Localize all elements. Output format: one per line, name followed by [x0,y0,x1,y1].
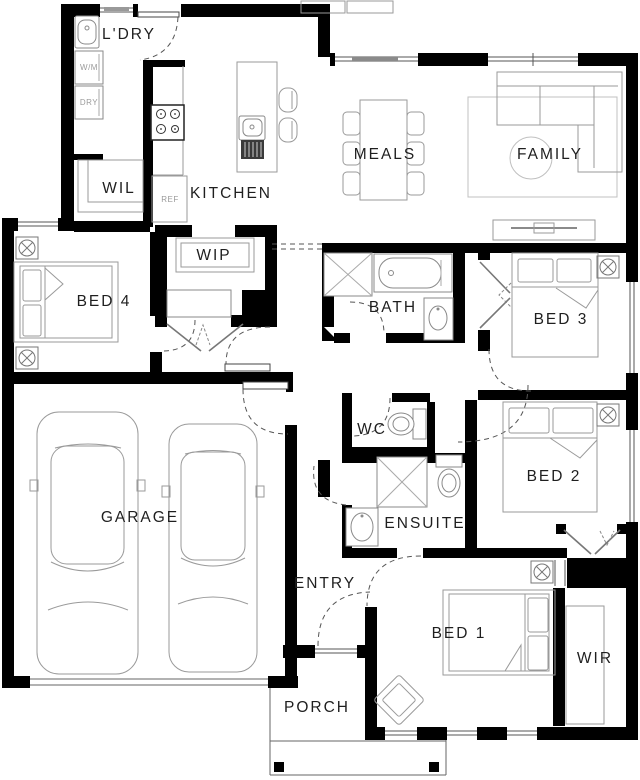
bath-vanity-icon [424,298,453,340]
car-1 [30,412,145,674]
car-2 [162,424,264,672]
room-label-kitchen: KITCHEN [190,185,272,202]
room-label-wc: WC [357,421,387,438]
front-door-arc [318,592,370,646]
room-label-family: FAMILY [517,146,583,163]
room-label-bed3: BED 3 [534,311,589,328]
floor-plan: L'DRY WIL KITCHEN WIP MEALS FAMILY BED 4… [0,0,640,780]
room-label-ldry: L'DRY [102,26,156,43]
ensuite-shower-icon [377,457,427,507]
porch-post [274,762,284,772]
bathtub-icon [374,254,452,292]
circled-x-icon [597,404,619,426]
bed1-door-arc [367,556,421,606]
garage-door-arc [243,389,288,434]
appliance-label-wm: W/M [80,63,98,72]
window-bed2 [626,430,638,522]
cooktop-icon [151,105,184,140]
circled-x-icon [597,256,619,278]
appliance-label-ref: REF [161,195,179,204]
ensuite-basin-icon [346,508,378,546]
front-door-sill [315,646,357,657]
room-label-porch: PORCH [284,699,350,716]
room-label-bed1: BED 1 [432,625,487,642]
bed3-furniture [512,253,598,357]
window-family [488,53,578,66]
porch-post [429,762,439,772]
room-label-entry: ENTRY [294,575,356,592]
wir-opening [555,560,565,586]
armchair [374,675,425,726]
laundry-tub-icon [75,16,99,48]
circled-x-icon [531,561,553,583]
island-stools [279,88,297,142]
circled-x-icon [16,347,38,369]
linen-cupboard [167,290,231,317]
windows-bed1-bottom [385,727,537,740]
window-bed3 [626,282,638,373]
hall-door-leaf [225,364,270,371]
appliance-label-dry: DRY [80,98,98,107]
room-label-bed2: BED 2 [527,468,582,485]
room-label-meals: MEALS [354,146,417,163]
windows [18,1,638,740]
light-symbols [16,237,619,583]
tv-unit [493,220,595,240]
island-bench [237,62,277,172]
bath-shower-icon [324,253,372,296]
room-label-bed4: BED 4 [77,293,132,310]
circled-x-icon [16,237,38,259]
bed2-furniture [503,402,597,512]
floor-plan-drawing: L'DRY WIL KITCHEN WIP MEALS FAMILY BED 4… [0,0,640,780]
room-label-garage: GARAGE [101,509,179,526]
window-meals [335,53,418,66]
garage-door [30,679,268,685]
room-label-bath: BATH [369,299,417,316]
room-label-ensuite: ENSUITE [384,515,465,532]
bed3-door-arc [489,349,531,391]
ensuite-toilet-icon [436,455,462,497]
wc-toilet-icon [388,409,426,439]
room-label-wip: WIP [196,247,231,264]
room-label-wil: WIL [102,180,136,197]
laundry-door-leaf [138,12,179,17]
window-laundry-top [100,4,133,17]
roof-feature [347,1,393,13]
garage-door-leaf [243,382,288,389]
window-bed4-top [18,218,58,231]
room-label-wir: WIR [577,650,613,667]
